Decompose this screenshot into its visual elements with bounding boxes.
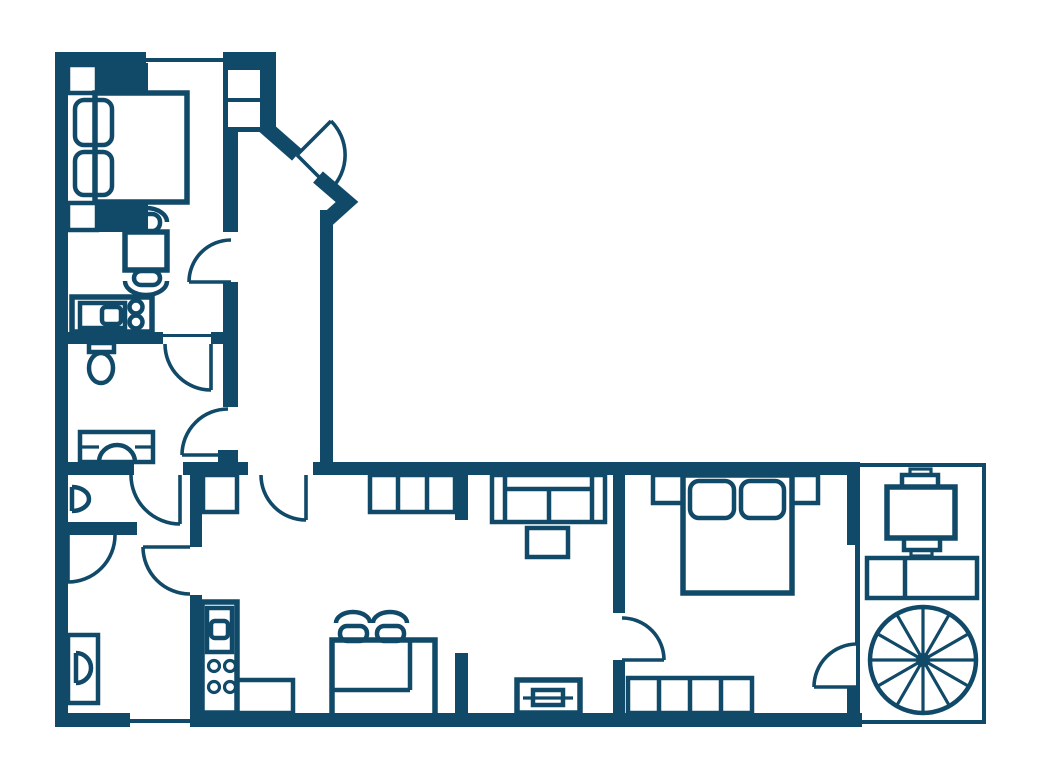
- shelf-block-icon: [97, 63, 148, 93]
- cabinet-icon: [203, 475, 237, 512]
- sofa-icon: [492, 475, 605, 522]
- kitchen-living-furniture: [202, 475, 605, 717]
- kitchen-study-door-icon: [143, 547, 190, 594]
- pillow-icon: [690, 481, 734, 518]
- chair-back: [911, 550, 932, 556]
- wc-right-wall: [190, 462, 202, 547]
- wc-study-door-icon: [68, 535, 115, 582]
- toilet-icon: [89, 343, 114, 383]
- chair-back: [910, 469, 931, 475]
- washbasin-icon: [72, 487, 89, 511]
- living-bedroom-divider-lower: [613, 660, 625, 715]
- hall-bathroom-door-icon: [182, 409, 228, 455]
- nightstand-icon: [68, 65, 97, 93]
- hall-right-wall: [320, 210, 333, 462]
- nightstand-icon: [653, 475, 683, 503]
- doors: [68, 121, 857, 687]
- bedroom-top-left-furniture: [68, 63, 187, 332]
- burner-icon: [130, 301, 143, 314]
- nightstand-icon: [792, 475, 818, 503]
- counter-icon: [237, 680, 293, 713]
- stove-unit-icon: [202, 602, 237, 713]
- stool-icon: [373, 612, 407, 641]
- entry-diagonal-wall: [264, 126, 297, 155]
- nightstand-icon: [68, 203, 97, 230]
- floor-plan-page: [0, 0, 1040, 780]
- wardrobe-icon: [628, 678, 752, 713]
- exterior-walls: [55, 52, 862, 727]
- bathroom-wc-door-icon: [131, 475, 180, 524]
- double-bed-icon: [95, 93, 187, 202]
- chair-icon: [902, 475, 938, 487]
- chair-icon: [904, 538, 940, 550]
- hall-left-wall-upper: [223, 132, 238, 232]
- bar-counter-icon: [332, 640, 435, 717]
- bedroom-bathroom-door-icon: [163, 334, 211, 390]
- double-bed-icon: [683, 475, 792, 593]
- wall-bottom-a: [55, 713, 130, 727]
- dining-table-icon: [887, 469, 955, 556]
- stool-icon: [336, 612, 370, 641]
- living-bedroom-door-icon: [622, 618, 664, 660]
- closet-shelf-cell: [228, 70, 260, 98]
- interior-walls: [55, 126, 860, 727]
- wall-left: [55, 52, 68, 727]
- burner-icon: [225, 661, 236, 672]
- window-top: [146, 58, 223, 62]
- kitchenette-counter-icon: [72, 297, 152, 332]
- coffee-table-icon: [527, 528, 568, 557]
- wall-sink-icon: [68, 635, 98, 703]
- bedroom-stair-door-icon: [814, 644, 857, 687]
- pillow-icon: [741, 481, 784, 518]
- bathroom-door-jamb: [211, 332, 238, 344]
- entry-door-icon: [297, 121, 345, 189]
- wc-bottom-wall: [55, 522, 137, 535]
- burner-icon: [209, 661, 220, 672]
- chair-icon: [125, 271, 167, 295]
- burner-icon: [225, 682, 236, 693]
- hall-left-wall-low: [223, 344, 238, 407]
- radiator-icon: [517, 680, 580, 713]
- window-bottom: [130, 719, 190, 723]
- stair-center-post: [916, 653, 930, 667]
- hall-living-door-icon: [261, 475, 306, 520]
- closet-shelf-cell: [228, 102, 260, 127]
- burner-icon: [209, 682, 220, 693]
- stub-partition-bottom: [455, 653, 468, 713]
- living-bedroom-divider-upper: [613, 462, 625, 613]
- floor-plan-drawing: [0, 0, 1040, 780]
- bedroom-right-furniture: [628, 475, 818, 713]
- burner-icon: [130, 316, 143, 329]
- stair-terrace-area: [858, 465, 984, 722]
- sideboard-icon: [370, 475, 455, 512]
- cabinet-icon: [867, 558, 977, 598]
- spiral-staircase-icon: [870, 607, 976, 713]
- bedroom-top-door-icon: [189, 240, 231, 282]
- side-table-icon: [125, 232, 167, 270]
- sink-icon: [80, 432, 153, 462]
